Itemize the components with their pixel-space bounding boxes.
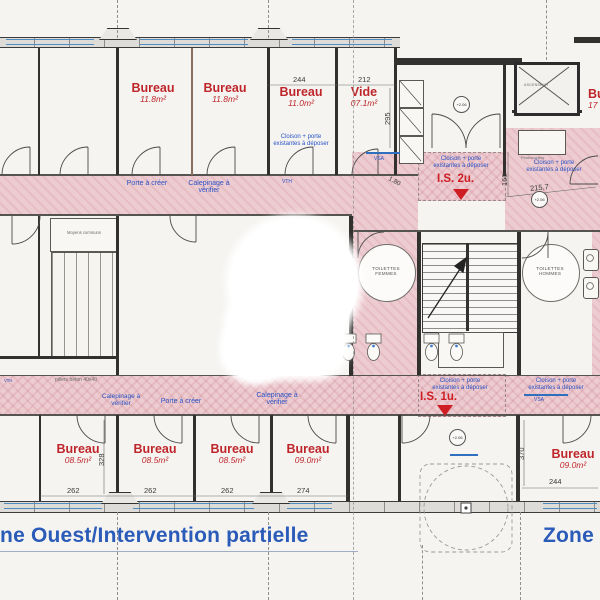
corridor-top-wall xyxy=(0,174,418,176)
wall-top-right xyxy=(574,37,600,43)
wall-v xyxy=(267,45,270,175)
vsa-label-top: VSA xyxy=(374,156,384,163)
pilaster-cap xyxy=(101,492,139,504)
stair-landing xyxy=(438,332,504,368)
vth-label-2: VTH xyxy=(4,377,12,384)
wall-v xyxy=(398,415,401,502)
corridor-bottom-wall xyxy=(0,214,352,216)
level-marker-3: +2.06 xyxy=(449,429,466,446)
cloison-note-3: Cloison + porte existantes à déposer xyxy=(512,160,596,174)
photocopier xyxy=(518,130,566,155)
dim-262-1: 262 xyxy=(67,486,80,495)
dim-295: 295 xyxy=(383,112,392,125)
dim-244-right: 244 xyxy=(549,477,562,486)
grid-axis xyxy=(422,545,423,600)
toilets-women-label: TOILETTES FEMMES xyxy=(360,266,412,277)
moyens-label: Moyens communs xyxy=(56,230,112,235)
stairwell-wall-left xyxy=(417,232,421,375)
wall-v xyxy=(38,45,40,175)
wall-v xyxy=(39,415,41,502)
vsa-line-top xyxy=(366,152,400,154)
wall-v xyxy=(335,45,338,175)
is1-label: I.S. 1u. xyxy=(420,391,457,403)
room-bureau-bottom-3: Bureau 08.5m² xyxy=(197,443,267,465)
wall-v xyxy=(38,216,40,356)
window-top-2 xyxy=(140,39,248,45)
window-bottom-3 xyxy=(287,503,332,509)
vsa-line-lower xyxy=(524,394,568,396)
zone-west-title: Zone Ouest/Intervention partielle xyxy=(0,524,309,548)
dim-244-top: 244 xyxy=(293,75,306,84)
wall-v xyxy=(503,60,506,176)
zone-divider-line xyxy=(0,551,358,552)
wall-v xyxy=(116,415,119,502)
vth-label: VTH xyxy=(282,179,292,186)
wall-v xyxy=(116,216,119,375)
elevator-label: ASCENSEUR xyxy=(524,83,548,87)
window-bottom-1 xyxy=(4,503,102,509)
pilaster-cap xyxy=(99,28,137,40)
grid-axis xyxy=(117,0,118,38)
sink-1 xyxy=(583,249,599,271)
cloison-note-2: Cloison + porte existantes à déposer xyxy=(420,156,502,170)
cloison-note-5: Cloison + porte existantes à déposer xyxy=(514,378,598,392)
stairwell-wall-right xyxy=(517,232,521,375)
level-marker-2: +2.06 xyxy=(531,191,548,208)
porte-creer-top: Porte à créer xyxy=(116,180,178,187)
wall-v xyxy=(116,45,119,175)
grid-axis xyxy=(268,0,269,38)
pilaster-cap xyxy=(250,28,288,40)
mid-right-top-wall xyxy=(352,230,600,232)
cloison-note-1: Cloison + porte existantes à déposer xyxy=(266,134,336,148)
is1-triangle xyxy=(437,405,453,416)
vsa-label-lower: VSA xyxy=(534,397,544,404)
dim-370: 370 xyxy=(517,447,526,460)
window-bottom-4 xyxy=(543,503,597,509)
room-bureau-top-1: Bureau 11.8m² xyxy=(118,82,188,104)
band-bottom-wall xyxy=(0,414,600,416)
room-bureau-top-right-partial: Bureau 17 xyxy=(588,88,600,110)
duct-cell-2 xyxy=(399,108,424,136)
calepinage-top: Calepinage à vérifier xyxy=(178,180,240,194)
is2-label: I.S. 2u. xyxy=(437,173,474,185)
room-vide: Vide 07.1m² xyxy=(334,86,394,108)
dim-160: 160 xyxy=(500,173,509,186)
moyens-room xyxy=(50,218,118,252)
window-top-3 xyxy=(292,39,392,45)
wall-midleft-h xyxy=(0,356,117,359)
dim-262-2: 262 xyxy=(144,486,157,495)
window-bottom-2 xyxy=(133,503,254,509)
storage-shelves xyxy=(51,252,117,359)
porte-creer-lower: Porte à créer xyxy=(150,398,212,405)
calepinage-lower-mid: Calepinage à vérifier xyxy=(246,392,308,406)
floor-plan: ASCENSEUR Photocopieur xyxy=(0,0,600,600)
dim-262-3: 262 xyxy=(221,486,234,495)
watermark-blob xyxy=(224,320,286,380)
room-bureau-top-3: Bureau 11.0m² xyxy=(266,86,336,108)
wall-v xyxy=(346,415,350,502)
vsa-line-center xyxy=(450,454,478,456)
wall-v xyxy=(193,415,196,502)
stairs-divider xyxy=(466,243,469,331)
stairs xyxy=(422,243,518,333)
dim-212: 212 xyxy=(358,75,371,84)
dim-274: 274 xyxy=(297,486,310,495)
duct-cell-1 xyxy=(399,80,424,108)
wall-v-existing xyxy=(191,45,193,175)
piliers-note: piliers béton 40x40 xyxy=(55,377,97,383)
room-bureau-bottom-4: Bureau 09.0m² xyxy=(273,443,343,465)
level-marker-1: +2.06 xyxy=(453,96,470,113)
sink-2 xyxy=(583,277,599,299)
grid-axis xyxy=(520,512,521,600)
is2-triangle xyxy=(453,189,469,200)
pilaster-cap xyxy=(252,492,290,504)
room-bureau-top-2: Bureau 11.8m² xyxy=(190,82,260,104)
window-top-1 xyxy=(6,39,94,45)
room-bureau-bottom-5: Bureau 09.0m² xyxy=(538,448,600,470)
room-bureau-bottom-2: Bureau 08.5m² xyxy=(120,443,190,465)
zone-east-title: Zone Est xyxy=(543,524,600,548)
wall-v xyxy=(394,45,397,175)
cloison-note-4: Cloison + porte existantes à déposer xyxy=(418,378,502,392)
calepinage-lower-left: Calepinage à vérifier xyxy=(92,393,150,407)
dim-328: 328 xyxy=(97,453,106,466)
grid-axis xyxy=(546,0,547,60)
toilets-men-label: TOILETTES HOMMES xyxy=(524,266,576,277)
elevator xyxy=(514,62,580,116)
